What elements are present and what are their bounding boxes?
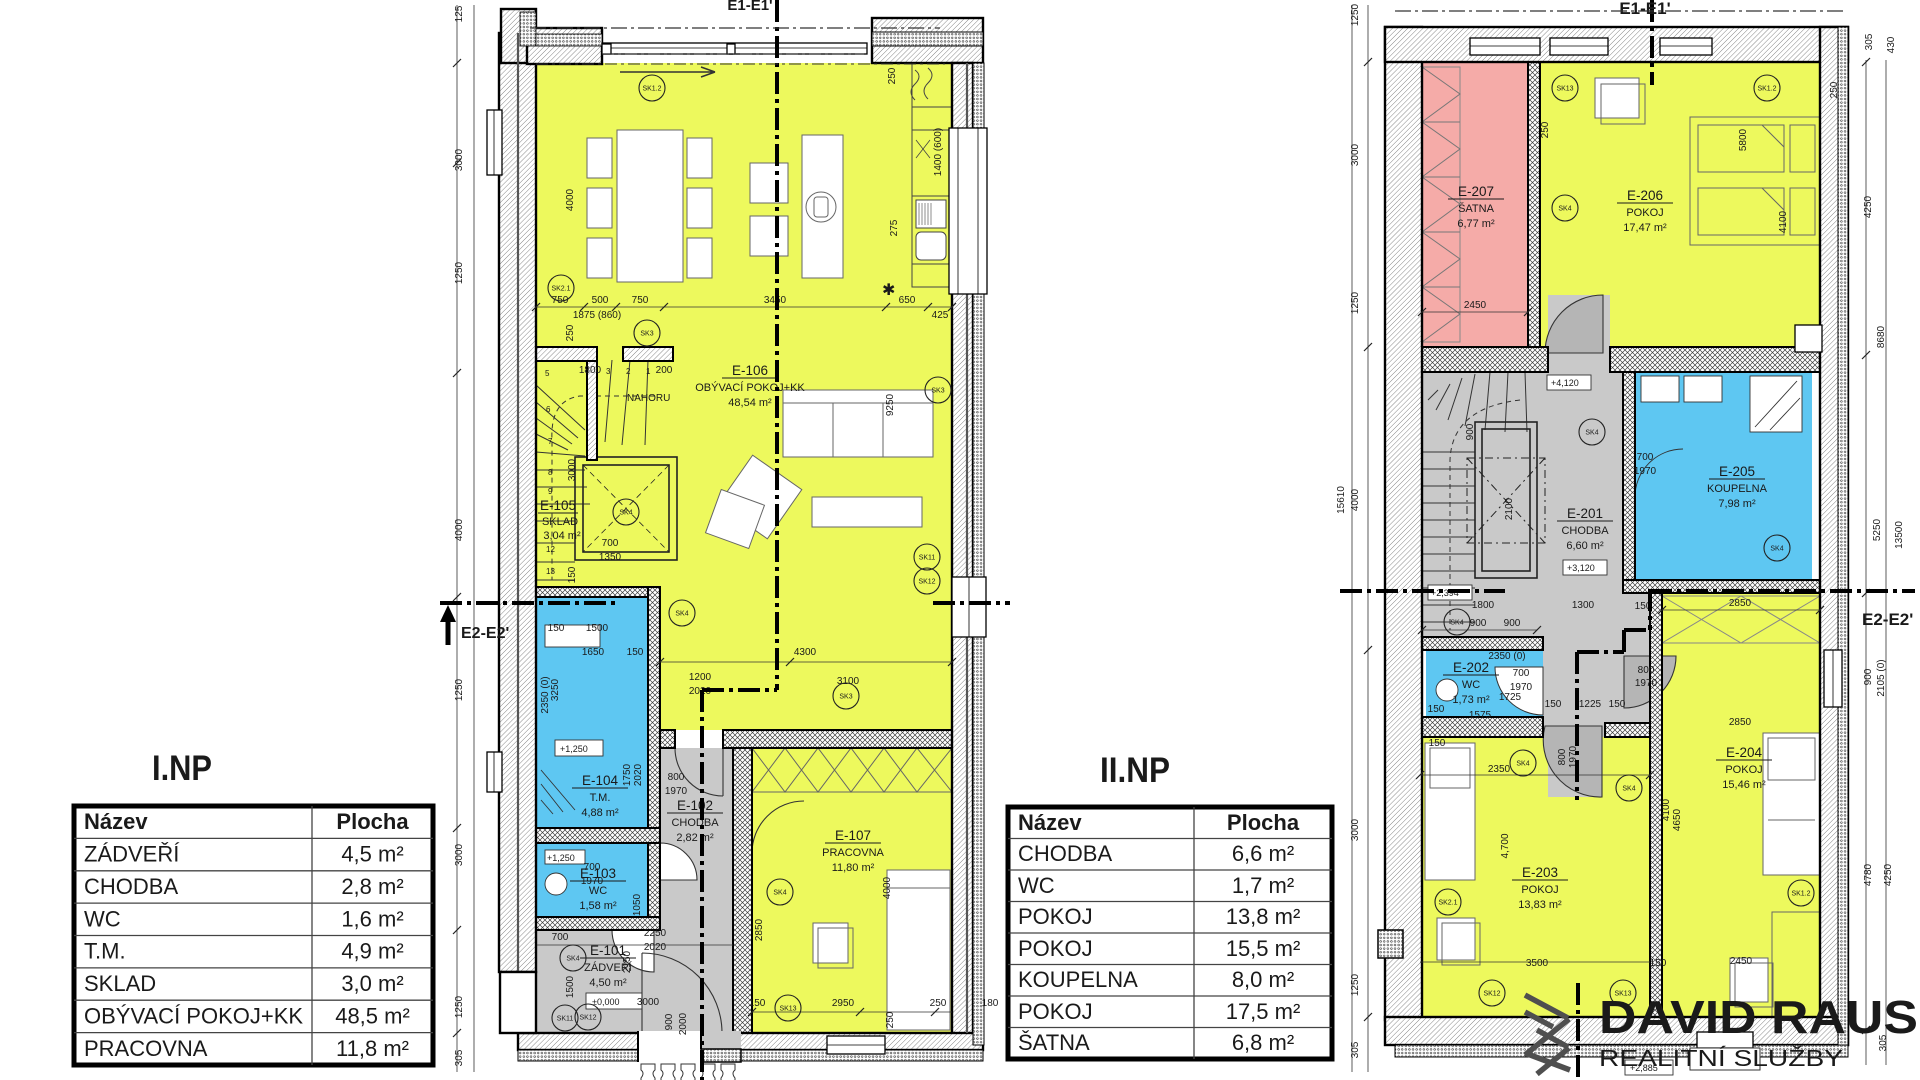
svg-text:13500: 13500 (1894, 521, 1905, 549)
svg-text:13,8 m²: 13,8 m² (1226, 904, 1301, 929)
svg-text:SK1.2: SK1.2 (1791, 891, 1810, 898)
svg-text:1250: 1250 (1350, 3, 1361, 26)
svg-text:4,700: 4,700 (1500, 833, 1511, 858)
svg-text:SK12: SK12 (918, 579, 935, 586)
svg-text:I.NP: I.NP (152, 749, 212, 788)
svg-text:11,8 m²: 11,8 m² (336, 1036, 409, 1061)
svg-text:1750: 1750 (622, 763, 633, 786)
svg-text:1250: 1250 (1350, 973, 1361, 996)
svg-text:5: 5 (545, 369, 550, 378)
svg-text:SK4: SK4 (675, 611, 688, 618)
svg-text:1,58 m²: 1,58 m² (579, 900, 617, 912)
svg-text:2850: 2850 (1729, 598, 1752, 609)
svg-text:48,5 m²: 48,5 m² (335, 1003, 410, 1028)
svg-text:E-207: E-207 (1458, 184, 1494, 199)
svg-text:SK4: SK4 (619, 510, 632, 517)
svg-text:150: 150 (627, 647, 644, 658)
svg-text:1225: 1225 (1579, 699, 1602, 710)
svg-text:1800: 1800 (579, 365, 602, 376)
svg-text:✱: ✱ (882, 282, 895, 299)
svg-text:SK13: SK13 (779, 1006, 796, 1013)
svg-text:900: 900 (664, 1013, 675, 1030)
svg-text:KOUPELNA: KOUPELNA (1018, 967, 1138, 992)
svg-text:+4,120: +4,120 (1551, 378, 1579, 388)
svg-text:425: 425 (932, 310, 949, 321)
svg-text:E-205: E-205 (1719, 464, 1755, 479)
svg-text:ZÁDVEŘÍ: ZÁDVEŘÍ (584, 961, 633, 974)
svg-text:3000: 3000 (637, 997, 660, 1008)
svg-text:CHODBA: CHODBA (84, 874, 178, 899)
svg-text:150: 150 (1429, 738, 1446, 749)
svg-text:E1-E1': E1-E1' (1619, 0, 1670, 18)
svg-text:4,50 m²: 4,50 m² (589, 977, 627, 989)
svg-text:E-101: E-101 (590, 943, 626, 958)
svg-text:4100: 4100 (1661, 798, 1672, 821)
svg-text:3000: 3000 (454, 843, 465, 866)
svg-text:12: 12 (546, 545, 555, 554)
svg-text:11,80 m²: 11,80 m² (832, 862, 875, 874)
svg-text:2105 (0): 2105 (0) (1876, 659, 1887, 696)
svg-text:ŠATNA: ŠATNA (1458, 202, 1495, 215)
svg-text:4,88 m²: 4,88 m² (581, 807, 619, 819)
svg-text:305: 305 (1350, 1041, 1361, 1058)
svg-text:3000: 3000 (1350, 818, 1361, 841)
svg-text:+1,250: +1,250 (560, 744, 588, 754)
svg-text:150: 150 (548, 623, 565, 634)
svg-text:7,98 m²: 7,98 m² (1718, 498, 1756, 510)
svg-text:SK4: SK4 (773, 890, 786, 897)
svg-text:SK2.1: SK2.1 (551, 286, 570, 293)
svg-text:5250: 5250 (1872, 518, 1883, 541)
svg-text:17,5 m²: 17,5 m² (1226, 999, 1301, 1024)
svg-text:E-106: E-106 (732, 363, 768, 378)
svg-text:150: 150 (1650, 958, 1667, 969)
svg-text:2850: 2850 (1729, 717, 1752, 728)
svg-text:13,83 m²: 13,83 m² (1518, 899, 1562, 911)
svg-text:POKOJ: POKOJ (1018, 936, 1093, 961)
svg-text:Plocha: Plocha (336, 809, 409, 834)
svg-text:SK3: SK3 (839, 694, 852, 701)
svg-text:T.M.: T.M. (590, 792, 611, 804)
svg-text:POKOJ: POKOJ (1521, 884, 1558, 896)
svg-text:+3,120: +3,120 (1567, 563, 1595, 573)
svg-text:Plocha: Plocha (1227, 810, 1300, 835)
svg-text:6,8 m²: 6,8 m² (1232, 1030, 1294, 1055)
svg-text:150: 150 (749, 998, 766, 1009)
svg-text:430: 430 (1886, 36, 1897, 53)
svg-text:1970: 1970 (1510, 682, 1533, 693)
svg-text:4000: 4000 (882, 876, 893, 899)
svg-text:OBÝVACÍ POKOJ+KK: OBÝVACÍ POKOJ+KK (84, 1003, 303, 1028)
svg-text:SK4: SK4 (1450, 620, 1463, 627)
svg-text:250: 250 (887, 67, 898, 84)
svg-text:15610: 15610 (1336, 486, 1347, 514)
svg-text:E-102: E-102 (677, 798, 713, 813)
svg-text:ŠATNA: ŠATNA (1018, 1030, 1090, 1055)
svg-text:E-204: E-204 (1726, 745, 1763, 760)
svg-text:8680: 8680 (1876, 325, 1887, 348)
svg-text:17,47 m²: 17,47 m² (1623, 222, 1667, 234)
svg-text:CHODBA: CHODBA (1018, 841, 1112, 866)
svg-text:4780: 4780 (1863, 863, 1874, 886)
svg-text:200: 200 (656, 365, 673, 376)
svg-text:1725: 1725 (1499, 692, 1522, 703)
svg-text:1875 (860): 1875 (860) (573, 310, 621, 321)
svg-text:E-105: E-105 (540, 498, 576, 513)
svg-text:2250: 2250 (644, 928, 667, 939)
svg-text:SK13: SK13 (1556, 86, 1573, 93)
svg-text:DAVID RAUS: DAVID RAUS (1599, 991, 1918, 1043)
svg-text:3000: 3000 (454, 148, 465, 171)
svg-text:8,0 m²: 8,0 m² (1232, 967, 1294, 992)
svg-text:SK11: SK11 (557, 1016, 574, 1023)
svg-text:SK3: SK3 (640, 331, 653, 338)
svg-text:2950: 2950 (832, 998, 855, 1009)
svg-text:3,04 m²: 3,04 m² (543, 530, 581, 542)
svg-text:REALITNÍ SLUŽBY: REALITNÍ SLUŽBY (1599, 1045, 1843, 1071)
svg-text:180: 180 (982, 998, 999, 1009)
svg-text:SK4: SK4 (1585, 430, 1598, 437)
svg-text:E2-E2': E2-E2' (461, 625, 509, 642)
svg-text:1970: 1970 (1635, 678, 1658, 689)
svg-text:3000: 3000 (567, 458, 578, 481)
svg-text:KOUPELNA: KOUPELNA (1707, 483, 1768, 495)
svg-text:1350: 1350 (599, 552, 622, 563)
svg-text:Název: Název (84, 809, 148, 834)
svg-text:1970: 1970 (1634, 466, 1657, 477)
svg-text:SK1.2: SK1.2 (642, 86, 661, 93)
svg-text:SKLAD: SKLAD (84, 971, 156, 996)
svg-text:3,0 m²: 3,0 m² (341, 971, 403, 996)
svg-text:1050: 1050 (632, 893, 643, 916)
svg-text:4650: 4650 (1672, 808, 1683, 831)
svg-text:1650: 1650 (582, 647, 605, 658)
svg-text:750: 750 (632, 295, 649, 306)
svg-text:4000: 4000 (454, 518, 465, 541)
svg-text:1250: 1250 (454, 995, 465, 1018)
svg-text:SK3: SK3 (931, 388, 944, 395)
svg-text:1500: 1500 (565, 975, 576, 998)
svg-text:250: 250 (885, 1011, 896, 1028)
svg-text:900: 900 (1465, 423, 1476, 440)
svg-text:POKOJ: POKOJ (1018, 999, 1093, 1024)
svg-text:1,7 m²: 1,7 m² (1232, 873, 1294, 898)
svg-text:900: 900 (1863, 668, 1874, 685)
svg-text:1400 (600): 1400 (600) (933, 128, 944, 176)
svg-text:250: 250 (1540, 121, 1551, 138)
svg-text:CHODBA: CHODBA (1561, 525, 1609, 537)
svg-text:800: 800 (1557, 748, 1568, 765)
svg-text:OBÝVACÍ POKOJ+KK: OBÝVACÍ POKOJ+KK (695, 381, 805, 394)
svg-text:II.NP: II.NP (1100, 751, 1170, 790)
svg-text:9250: 9250 (885, 393, 896, 416)
svg-text:SKLAD: SKLAD (542, 516, 578, 528)
svg-text:4000: 4000 (1350, 488, 1361, 511)
svg-text:1970: 1970 (665, 786, 688, 797)
svg-text:4000: 4000 (565, 188, 576, 211)
svg-text:E2-E2': E2-E2' (1862, 610, 1913, 629)
svg-text:3000: 3000 (1350, 143, 1361, 166)
svg-text:1,73 m²: 1,73 m² (1452, 694, 1490, 706)
svg-text:275: 275 (889, 219, 900, 236)
svg-text:150: 150 (1545, 699, 1562, 710)
svg-text:15,46 m²: 15,46 m² (1722, 779, 1766, 791)
svg-text:WC: WC (1018, 873, 1055, 898)
svg-text:PRACOVNA: PRACOVNA (822, 847, 884, 859)
svg-text:POKOJ: POKOJ (1626, 207, 1663, 219)
svg-text:POKOJ: POKOJ (1725, 764, 1762, 776)
svg-text:13: 13 (546, 567, 555, 576)
svg-text:125: 125 (454, 5, 465, 22)
svg-text:1250: 1250 (1350, 291, 1361, 314)
svg-text:150: 150 (1428, 704, 1445, 715)
svg-text:Název: Název (1018, 810, 1082, 835)
svg-text:5800: 5800 (1738, 128, 1749, 151)
svg-text:250: 250 (930, 998, 947, 1009)
svg-text:6: 6 (546, 405, 551, 414)
svg-text:WC: WC (589, 885, 607, 897)
svg-text:E-201: E-201 (1567, 506, 1603, 521)
svg-text:1: 1 (646, 367, 651, 376)
svg-text:SK4: SK4 (1622, 786, 1635, 793)
svg-text:6,77 m²: 6,77 m² (1457, 218, 1495, 230)
svg-text:2100: 2100 (1504, 497, 1515, 520)
svg-text:E1-E1': E1-E1' (727, 0, 772, 14)
svg-text:4250: 4250 (1863, 195, 1874, 218)
svg-text:PRACOVNA: PRACOVNA (84, 1036, 208, 1061)
svg-text:2020: 2020 (644, 942, 667, 953)
svg-text:3: 3 (606, 367, 611, 376)
svg-text:4,9 m²: 4,9 m² (341, 939, 403, 964)
svg-text:1200: 1200 (689, 672, 712, 683)
svg-text:1575: 1575 (1469, 710, 1492, 721)
svg-text:SK1.2: SK1.2 (1757, 86, 1776, 93)
svg-text:305: 305 (454, 1049, 465, 1066)
svg-text:2020: 2020 (633, 763, 644, 786)
svg-text:SK4: SK4 (1770, 546, 1783, 553)
svg-text:E-206: E-206 (1627, 188, 1663, 203)
svg-text:SK11: SK11 (919, 555, 936, 562)
svg-text:500: 500 (592, 295, 609, 306)
svg-text:E-104: E-104 (582, 773, 619, 788)
svg-text:305: 305 (1864, 33, 1875, 50)
svg-text:900: 900 (1470, 618, 1487, 629)
svg-text:2450: 2450 (1730, 956, 1753, 967)
svg-text:2450: 2450 (1464, 300, 1487, 311)
svg-text:1300: 1300 (1572, 600, 1595, 611)
svg-text:ZÁDVEŘÍ: ZÁDVEŘÍ (84, 842, 180, 867)
svg-text:7: 7 (548, 437, 553, 446)
svg-text:WC: WC (84, 906, 121, 931)
svg-text:800: 800 (1638, 665, 1655, 676)
svg-text:E-107: E-107 (835, 828, 871, 843)
svg-text:2350 (0): 2350 (0) (1488, 651, 1525, 662)
svg-text:2850: 2850 (754, 918, 765, 941)
svg-text:SK12: SK12 (1483, 991, 1500, 998)
svg-text:E-203: E-203 (1522, 865, 1558, 880)
svg-text:650: 650 (899, 295, 916, 306)
svg-text:WC: WC (1462, 679, 1480, 691)
svg-text:SK12: SK12 (579, 1015, 596, 1022)
svg-text:1,6 m²: 1,6 m² (341, 906, 403, 931)
svg-text:2350: 2350 (1488, 764, 1511, 775)
svg-text:250: 250 (1829, 81, 1840, 98)
svg-text:9: 9 (548, 487, 553, 496)
svg-text:SK4: SK4 (1516, 761, 1529, 768)
svg-text:E-103: E-103 (580, 866, 616, 881)
svg-text:900: 900 (1504, 618, 1521, 629)
svg-text:1800: 1800 (1472, 600, 1495, 611)
svg-text:150: 150 (1609, 699, 1626, 710)
svg-text:1250: 1250 (454, 678, 465, 701)
svg-text:2,82 m²: 2,82 m² (676, 832, 714, 844)
svg-text:3500: 3500 (1526, 958, 1549, 969)
svg-text:SK2.1: SK2.1 (1438, 900, 1457, 907)
svg-text:15,5 m²: 15,5 m² (1226, 936, 1301, 961)
svg-text:SK4: SK4 (1558, 206, 1571, 213)
svg-text:250: 250 (565, 324, 576, 341)
svg-text:POKOJ: POKOJ (1018, 904, 1093, 929)
svg-text:2000: 2000 (678, 1012, 689, 1035)
svg-text:3250: 3250 (550, 678, 561, 701)
svg-text:NAHORU: NAHORU (627, 393, 670, 404)
svg-text:2: 2 (626, 367, 631, 376)
svg-text:+1,250: +1,250 (547, 853, 575, 863)
svg-text:700: 700 (1513, 668, 1530, 679)
svg-text:700: 700 (1637, 452, 1654, 463)
svg-text:3100: 3100 (837, 676, 860, 687)
svg-text:4100: 4100 (1778, 210, 1789, 233)
svg-text:CHODBA: CHODBA (671, 817, 719, 829)
svg-text:E-202: E-202 (1453, 660, 1489, 675)
svg-text:4300: 4300 (794, 647, 817, 658)
svg-text:1500: 1500 (586, 623, 609, 634)
svg-text:8: 8 (548, 468, 553, 477)
svg-text:T.M.: T.M. (84, 939, 126, 964)
svg-text:6,60 m²: 6,60 m² (1566, 540, 1604, 552)
svg-text:700: 700 (552, 932, 569, 943)
svg-text:800: 800 (668, 772, 685, 783)
svg-text:4,5 m²: 4,5 m² (341, 842, 403, 867)
svg-text:4250: 4250 (1883, 863, 1894, 886)
svg-text:±0,000: ±0,000 (592, 997, 619, 1007)
svg-text:700: 700 (602, 538, 619, 549)
svg-text:SK4: SK4 (566, 956, 579, 963)
svg-text:48,54 m²: 48,54 m² (728, 397, 772, 409)
svg-text:1250: 1250 (454, 261, 465, 284)
svg-text:2,8 m²: 2,8 m² (341, 874, 403, 899)
svg-text:150: 150 (567, 566, 578, 583)
svg-text:6,6 m²: 6,6 m² (1232, 841, 1294, 866)
